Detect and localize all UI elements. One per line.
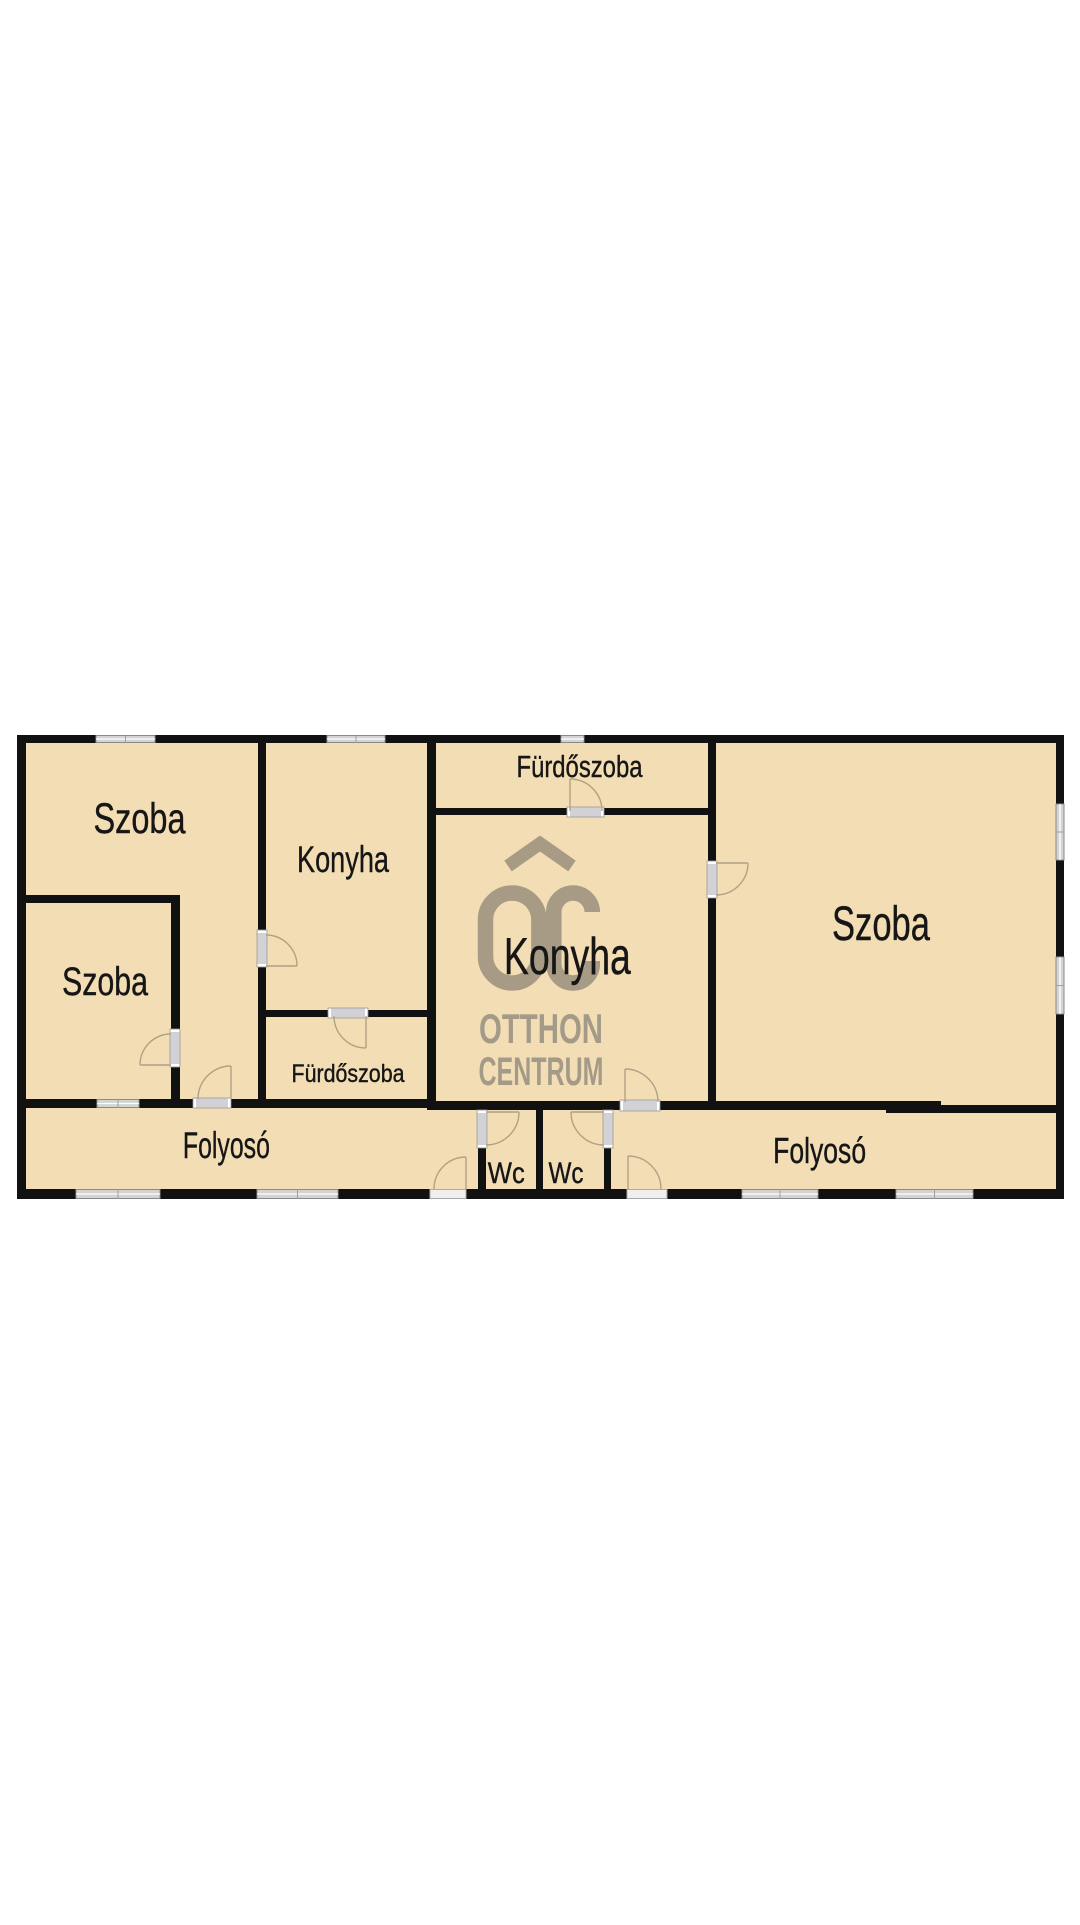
svg-text:OTTHON: OTTHON bbox=[479, 1005, 603, 1052]
svg-text:Szoba: Szoba bbox=[94, 795, 186, 843]
svg-text:Wc: Wc bbox=[549, 1157, 584, 1190]
svg-text:Folyosó: Folyosó bbox=[183, 1124, 270, 1166]
svg-text:Konyha: Konyha bbox=[504, 928, 631, 986]
svg-text:CENTRUM: CENTRUM bbox=[479, 1050, 604, 1094]
svg-text:Konyha: Konyha bbox=[297, 838, 389, 880]
svg-text:Szoba: Szoba bbox=[832, 897, 930, 951]
svg-text:Szoba: Szoba bbox=[62, 960, 149, 1004]
svg-text:Fürdőszoba: Fürdőszoba bbox=[517, 750, 643, 784]
svg-text:Wc: Wc bbox=[488, 1157, 525, 1190]
svg-text:Fürdőszoba: Fürdőszoba bbox=[292, 1060, 405, 1088]
svg-text:Folyosó: Folyosó bbox=[773, 1130, 866, 1171]
